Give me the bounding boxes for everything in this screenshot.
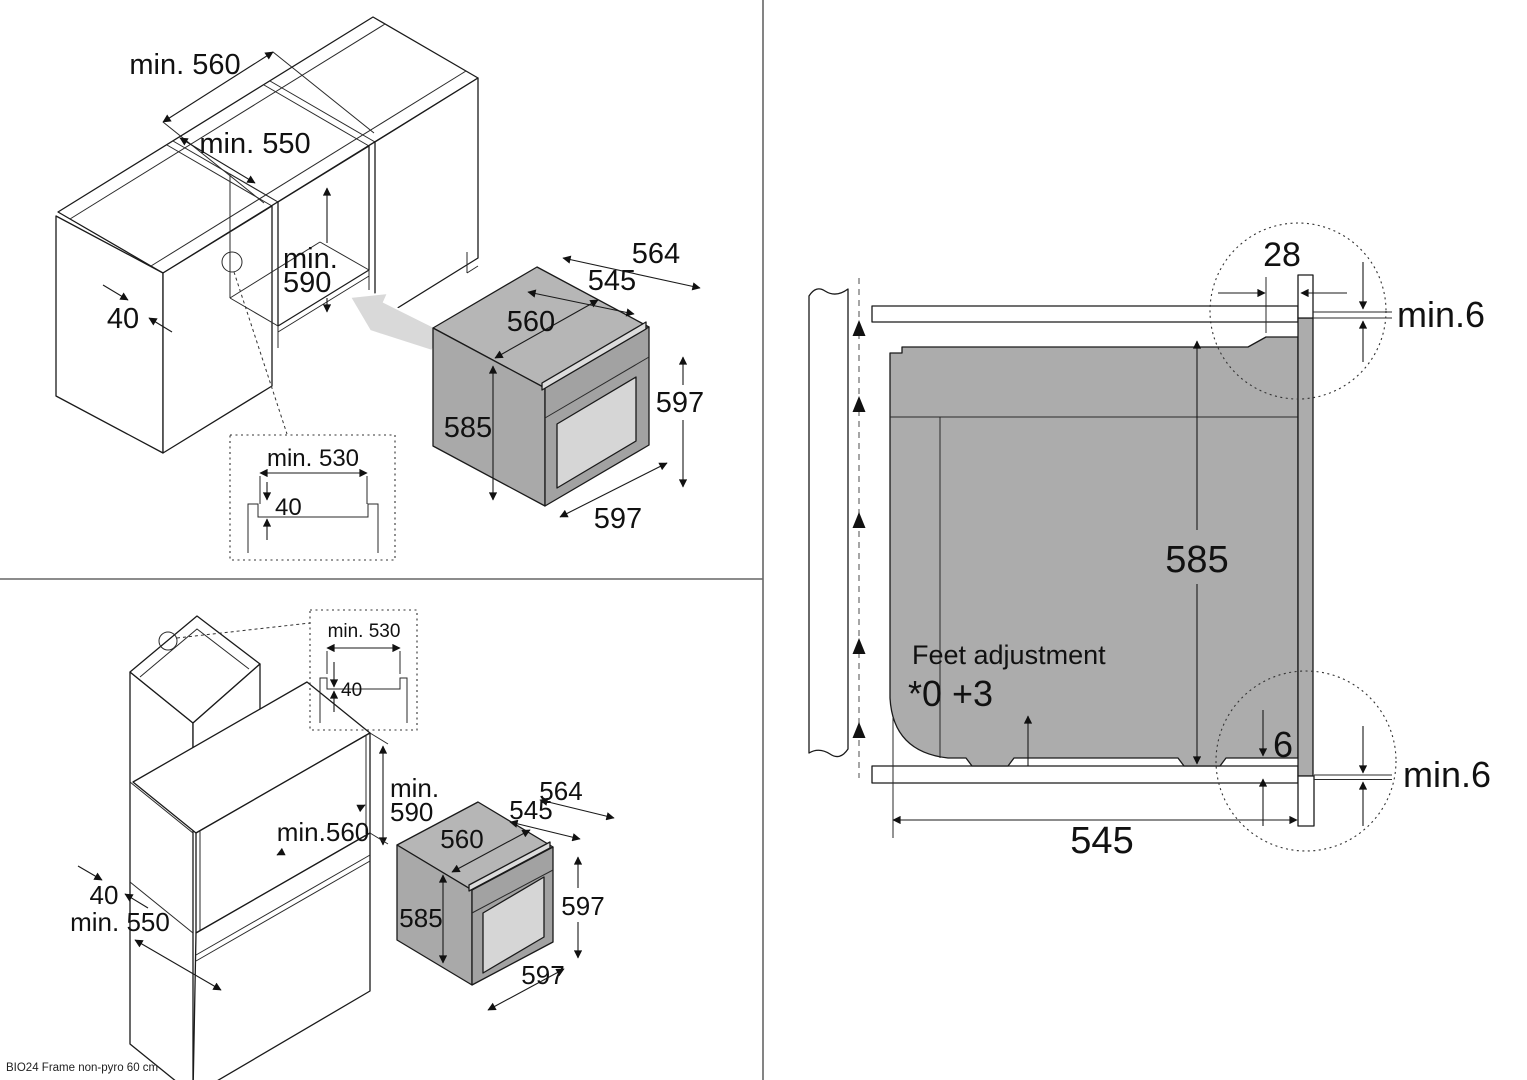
tall-oven-dim-545: 545 [509,795,552,825]
frame-top-stub [1298,275,1313,318]
tall-dim-min590-line2: 590 [390,797,433,827]
tall-oven-dim-597-side: 597 [561,891,604,921]
oven-dim-597-front: 597 [594,503,642,535]
dim-6: 6 [1273,724,1293,765]
countertop [872,306,1298,322]
oven-dim-564: 564 [632,238,680,270]
tall-cabinet-view: min. 590 min.560 40 min. 550 min. 530 40 [70,610,614,1080]
dim-585: 585 [1165,539,1228,581]
oven-dim-560: 560 [507,306,555,338]
model-note: BIO24 Frame non-pyro 60 cm [6,1062,158,1074]
tall-dim-40: 40 [90,880,119,910]
oven-dim-597-side: 597 [656,387,704,419]
bottom-shelf [872,766,1298,783]
tall-oven-dim-585: 585 [399,903,442,933]
diagram-canvas: min. 560 min. 550 min. 590 40 min. 530 4… [0,0,1527,1080]
dim-min550: min. 550 [199,128,310,160]
oven-dim-545: 545 [588,265,636,297]
dim-545: 545 [1070,820,1133,862]
rail-profile-detail: min. 530 40 [230,435,395,560]
oven-isometric: 560 585 564 545 597 597 [433,238,704,535]
oven-front-frame [1298,318,1313,776]
detail-min530: min. 530 [267,445,359,472]
dim-min590-line2: 590 [283,267,331,299]
dim-min6-bottom: min.6 [1403,754,1491,795]
dim-min6-top: min.6 [1397,294,1485,335]
tall-dim-min550: min. 550 [70,907,170,937]
detail-40: 40 [275,494,302,521]
dim-40: 40 [107,303,139,335]
installation-diagram-page: min. 560 min. 550 min. 590 40 min. 530 4… [0,0,1527,1080]
feet-adjustment-range: *0 +3 [908,673,993,714]
tall-oven-dim-597-front: 597 [521,960,564,990]
tall-detail-min530: min. 530 [328,621,401,642]
wall-panel [809,289,848,757]
dim-min560: min. 560 [129,49,240,81]
oven-dim-585: 585 [444,412,492,444]
tall-dim-min560: min.560 [277,817,370,847]
tall-oven-dim-560: 560 [440,824,483,854]
dim-28: 28 [1263,236,1301,274]
feet-adjustment-label: Feet adjustment [912,640,1106,670]
tall-detail-40: 40 [341,680,362,701]
tall-cabinet-side [130,672,193,1080]
section-view: 28 min.6 585 Feet adjustment *0 +3 6 min… [809,223,1491,862]
frame-bottom-stub [1298,776,1314,826]
base-cabinet-view: min. 560 min. 550 min. 590 40 min. 530 4… [56,17,704,560]
